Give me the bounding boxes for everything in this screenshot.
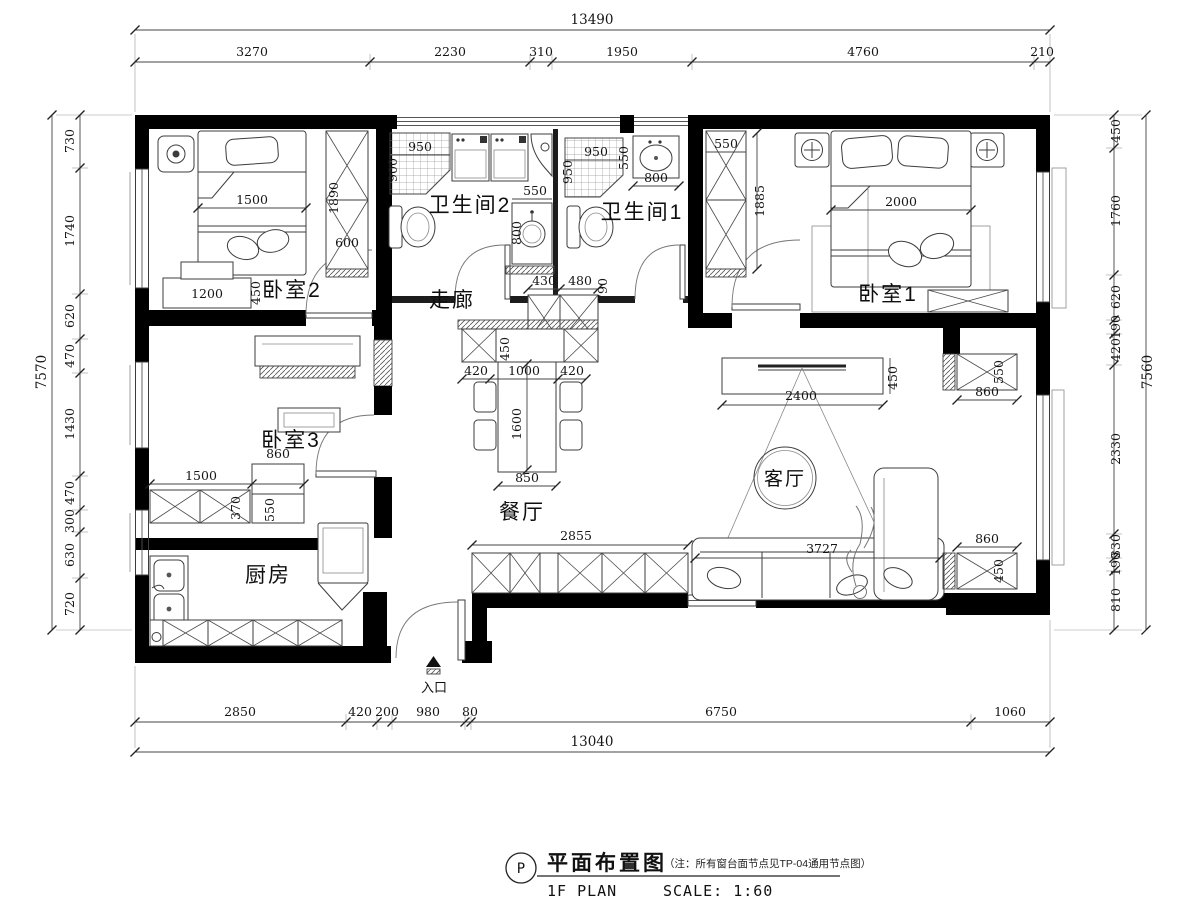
wardrobe-bedroom1 <box>706 131 746 277</box>
counter-bedroom3 <box>150 464 304 523</box>
furniture-dining: 450 420 1000 420 1600 850 2855 <box>458 320 693 593</box>
dim-bottom-seg: 200 <box>375 704 399 719</box>
dim-living-cab-bot-d: 450 <box>991 559 1006 583</box>
room-label-bedroom1: 卧室1 <box>858 283 918 306</box>
window-bedroom1-right <box>1037 168 1067 308</box>
dining-cabinet-row <box>472 553 688 593</box>
dim-bed3-counter: 1500 <box>185 468 217 483</box>
dim-right-seg: 620 <box>1108 285 1123 309</box>
dim-bottom-overall: 13040 <box>571 734 614 750</box>
dim-top-seg: 1950 <box>606 44 638 59</box>
furniture-living: 2400 450 3727 <box>691 354 1022 600</box>
window-bedroom3-left <box>130 362 149 448</box>
plan-tag: P <box>517 861 525 877</box>
room-label-bedroom2: 卧室2 <box>262 279 322 302</box>
dim-top-seg: 3270 <box>236 44 268 59</box>
dim-bath1-sink-w: 550 <box>616 146 631 170</box>
dim-bath2-shower-w: 950 <box>408 139 432 154</box>
kitchen-sink <box>150 556 188 628</box>
dim-left-overall: 7570 <box>34 355 50 389</box>
room-label-bath2: 卫生间2 <box>429 194 512 217</box>
dim-top-seg: 2230 <box>434 44 466 59</box>
entrance-marker: 入口 <box>421 656 447 695</box>
washing-machines <box>452 134 528 181</box>
dim-right-seg: 2330 <box>1108 433 1123 465</box>
room-label-bedroom3: 卧室3 <box>261 429 321 452</box>
dining-wall-strip <box>458 320 598 329</box>
room-label-bath1: 卫生间1 <box>601 201 684 224</box>
dim-dining-table-w: 1000 <box>508 363 540 378</box>
bed-bedroom1 <box>831 131 971 287</box>
dim-corridor-cab-h: 790 <box>595 278 610 302</box>
entrance-label: 入口 <box>421 680 447 695</box>
furniture-bedroom3: 1500 860 370 550 <box>146 336 361 523</box>
nightstand-right <box>970 133 1004 167</box>
floor-plan-drawing: 13490 3270 2230 310 1950 4760 210 13040 … <box>0 0 1200 910</box>
dim-bed1-wardrobe-h: 1885 <box>752 185 767 217</box>
dim-right-seg: 450 <box>1108 119 1123 143</box>
dim-left-seg: 1740 <box>62 215 77 247</box>
dim-living-cab-top-d: 550 <box>991 360 1006 384</box>
dim-right-seg: 420 <box>1108 338 1123 362</box>
dim-bed1-wardrobe-w: 550 <box>714 136 738 151</box>
dim-bed2-dresser: 1200 <box>191 286 223 301</box>
plan-scale: SCALE: 1:60 <box>663 882 773 900</box>
dim-bed2-wardrobe-w: 600 <box>335 235 359 250</box>
dim-bath2-shower-h: 900 <box>385 158 400 182</box>
dim-left-seg: 720 <box>62 592 77 616</box>
room-label-corridor: 走廊 <box>429 289 475 312</box>
dim-bed2-bed: 1500 <box>236 192 268 207</box>
dim-left-seg: 730 <box>62 129 77 153</box>
dim-tv-console: 2400 <box>785 388 817 403</box>
piano-desk <box>255 336 360 432</box>
dim-top-seg: 210 <box>1030 44 1054 59</box>
cabinet-bedroom1 <box>928 290 1008 312</box>
dim-left-seg: 1430 <box>62 408 77 440</box>
dim-dining-table-end: 850 <box>515 470 539 485</box>
dim-right-seg: 1760 <box>1108 195 1123 227</box>
dim-right-seg: 190 <box>1108 552 1123 576</box>
dim-right-seg: 190 <box>1108 315 1123 339</box>
dim-bed3-cab-d: 550 <box>262 498 277 522</box>
dining-cabinet-top <box>462 329 598 362</box>
window-bedroom2-left <box>130 169 149 288</box>
dim-bath1-shower-w: 950 <box>584 144 608 159</box>
dim-left-seg: 620 <box>62 304 77 328</box>
dimension-chain-top: 13490 3270 2230 310 1950 4760 210 <box>131 12 1055 112</box>
dim-bottom-seg: 980 <box>416 704 440 719</box>
plan-subtitle: 1F PLAN <box>547 882 617 900</box>
door-entry <box>396 600 465 660</box>
dim-bed2-dresser-d: 450 <box>248 281 263 305</box>
dim-dining-table-l: 1600 <box>509 408 524 440</box>
dim-bottom-seg: 420 <box>348 704 372 719</box>
dim-living-cab-top-w: 860 <box>975 384 999 399</box>
dim-right-overall: 7560 <box>1140 355 1156 389</box>
door-bath1 <box>635 245 685 299</box>
title-block: P 平面布置图 （注：所有窗台面节点见TP-04通用节点图） 1F PLAN S… <box>506 851 871 900</box>
entrance-arrow-icon <box>426 656 441 667</box>
dim-corridor-cab1: 430 <box>532 273 556 288</box>
window-top-bathrooms <box>397 118 688 126</box>
dim-tv-console-d: 450 <box>885 366 900 390</box>
dim-bottom-seg: 2850 <box>224 704 256 719</box>
dimension-chain-right: 7560 450 1760 620 190 420 2330 330 190 8… <box>1054 111 1156 635</box>
dim-bottom-seg: 6750 <box>705 704 737 719</box>
dim-left-seg: 470 <box>62 344 77 368</box>
furniture-bath1: 950 950 550 800 <box>560 136 684 248</box>
dim-vanity-h: 800 <box>509 221 524 245</box>
window-living-right <box>1037 390 1065 565</box>
dim-top-overall: 13490 <box>571 12 614 28</box>
dim-dining-right: 420 <box>560 363 584 378</box>
plan-title: 平面布置图 <box>547 851 667 875</box>
dim-dining-cab-row: 2855 <box>560 528 592 543</box>
room-label-dining: 餐厅 <box>499 501 545 524</box>
dim-living-cab-bot-w: 860 <box>975 531 999 546</box>
room-label-living: 客厅 <box>764 468 806 490</box>
dim-left-seg: 470 <box>62 481 77 505</box>
dim-dining-cab-d: 450 <box>497 337 512 361</box>
dimension-chain-left: 7570 730 1740 620 470 1430 470 300 630 7… <box>34 111 132 635</box>
floor-plan-sheet: 13490 3270 2230 310 1950 4760 210 13040 … <box>0 0 1200 910</box>
kitchen-counter <box>150 620 342 646</box>
dim-bath1-sink-d: 800 <box>644 170 668 185</box>
dim-corridor-cab2: 480 <box>568 273 592 288</box>
nightstand-left <box>795 133 829 167</box>
dim-vanity-w: 550 <box>523 183 547 198</box>
dim-bed2-wardrobe-h: 1890 <box>326 182 341 214</box>
furniture-bedroom1: 550 1885 2000 <box>706 129 1008 313</box>
dim-top-seg: 4760 <box>847 44 879 59</box>
dim-right-seg: 810 <box>1108 588 1123 612</box>
ceiling-speaker-icon <box>158 136 194 172</box>
dim-dining-left: 420 <box>464 363 488 378</box>
dim-bed3-counter-d: 370 <box>228 496 243 520</box>
dim-bottom-seg: 1060 <box>994 704 1026 719</box>
room-label-kitchen: 厨房 <box>245 564 291 587</box>
fridge <box>318 523 368 610</box>
dim-bottom-seg: 80 <box>462 704 478 719</box>
dim-sofa: 3727 <box>806 541 838 556</box>
corner-sink <box>531 134 552 176</box>
dim-left-seg: 300 <box>62 509 77 533</box>
dim-top-seg: 310 <box>529 44 553 59</box>
plan-note: （注：所有窗台面节点见TP-04通用节点图） <box>664 857 871 870</box>
dim-bath1-shower-h: 950 <box>560 160 575 184</box>
dim-bed1-bed: 2000 <box>885 194 917 209</box>
dim-left-seg: 630 <box>62 543 77 567</box>
